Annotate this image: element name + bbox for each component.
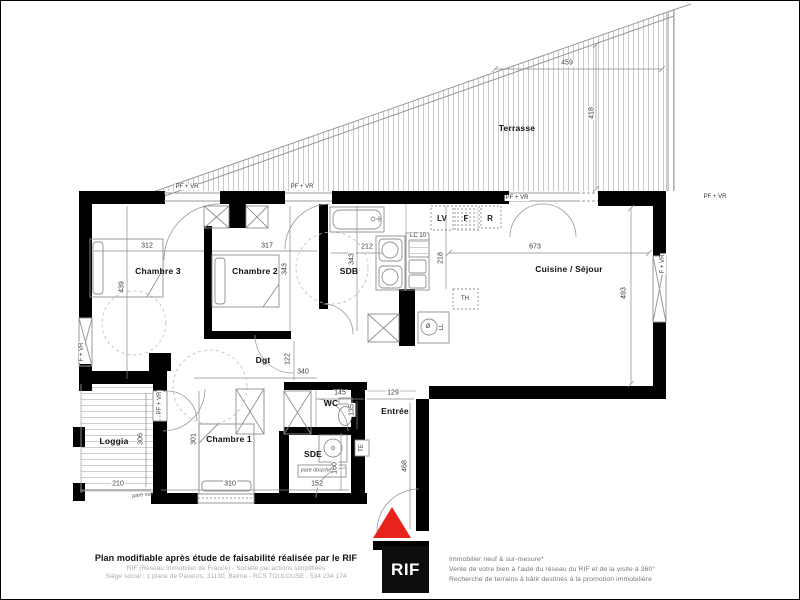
- footer-tagline-2: Vente de votre bien à l'aide du réseau d…: [449, 565, 749, 575]
- dim-loggia-height: 306: [138, 432, 145, 446]
- room-label-dgt: Dgt: [256, 356, 271, 365]
- dim-chambre2-height: 343: [282, 262, 289, 276]
- room-label-loggia: Loggia: [99, 437, 128, 446]
- room-label-chambre3: Chambre 3: [135, 267, 181, 276]
- dim-terrasse-width: 459: [560, 60, 574, 67]
- footer-title: Plan modifiable après étude de faisabili…: [61, 553, 391, 563]
- appliance-label-oven: R: [487, 215, 493, 223]
- rif-logo: RIF: [382, 546, 429, 593]
- appliance-label-fridge: F: [464, 215, 469, 223]
- terrace-outline: [153, 4, 691, 198]
- dim-chambre1-height: 301: [191, 432, 198, 446]
- room-label-cuisine: Cuisine / Séjour: [535, 265, 602, 274]
- room-label-wc: WC: [324, 399, 339, 408]
- dim-wc-width: 145: [333, 390, 347, 397]
- dim-dgt-height: 122: [285, 352, 292, 366]
- dim-chambre3-height: 439: [119, 280, 126, 294]
- dim-sde-height: 160: [332, 461, 339, 475]
- room-label-sde: SDE: [304, 450, 322, 459]
- window-tag-pf-vr-loggia: PF + VR: [157, 391, 163, 416]
- pillow-chambre3: [93, 242, 103, 294]
- pillow-chambre2: [215, 258, 225, 304]
- wardrobe-boxes: [204, 206, 399, 434]
- dim-chambre1-width: 310: [223, 481, 237, 488]
- dim-entree-height: 468: [402, 459, 409, 473]
- footer-right-block: Immobilier neuf & sur-mesure* Vente de v…: [449, 555, 749, 585]
- dim-sdb-width: 212: [360, 244, 374, 251]
- window-tag-f-vr-left: F + VR: [79, 342, 85, 363]
- dim-terrasse-height: 418: [589, 106, 596, 120]
- window-tag-f-vr-right: F + VR: [660, 254, 666, 275]
- room-label-entree: Entrée: [381, 407, 409, 416]
- window-tag-pf-vr-3: PF + VR: [505, 195, 530, 201]
- dim-cuisine-width: 673: [528, 244, 542, 251]
- floor-plan-page: Terrasse Chambre 3 Chambre 2 SDB Cuisine…: [0, 0, 800, 600]
- footer-left-block: Plan modifiable après étude de faisabili…: [61, 553, 391, 580]
- room-label-sdb: SDB: [340, 267, 359, 276]
- window-tag-pf-vr-1: PF + VR: [175, 184, 200, 190]
- tag-pare-douche: pare douche: [301, 468, 332, 474]
- dim-entree-width: 129: [386, 390, 400, 397]
- window-tag-pf-vr-2: PF + VR: [290, 184, 315, 190]
- tag-diameter: Ø: [425, 324, 432, 330]
- dim-chambre3-width: 312: [140, 243, 154, 250]
- dim-wc-height: 135: [349, 403, 356, 417]
- dim-dgt-width: 340: [296, 369, 310, 376]
- footer-company-line: RIF (Réseau Immobilier de France) - Soci…: [61, 565, 391, 572]
- footer-tagline-1: Immobilier neuf & sur-mesure*: [449, 555, 749, 565]
- floor-plan-graphics: [1, 1, 800, 600]
- window-tag-pf-vr-4: PF + VR: [703, 194, 728, 200]
- footer-address-line: Siège social : 1 place de Paveurs, 31130…: [61, 573, 391, 580]
- dim-chambre2-width: 317: [260, 243, 274, 250]
- footer-tagline-3: Recherche de terrains à bâtir destinés à…: [449, 575, 749, 585]
- dim-loggia-width: 210: [111, 481, 125, 488]
- room-label-chambre2: Chambre 2: [232, 267, 278, 276]
- entry-arrow: [373, 507, 411, 538]
- room-label-chambre1: Chambre 1: [206, 435, 252, 444]
- tag-th: TH: [460, 296, 470, 302]
- windows-layer: [79, 193, 666, 503]
- dim-sdb-height: 343: [349, 252, 356, 266]
- room-label-terrasse: Terrasse: [499, 124, 535, 133]
- double-washbasin: [376, 236, 405, 290]
- tag-lc10: LC 10: [409, 233, 427, 239]
- tag-te: TE: [359, 443, 365, 453]
- dim-sde-width: 152: [310, 481, 324, 488]
- clearance-circles: [102, 232, 368, 424]
- dim-kitchen-counter: 218: [438, 251, 445, 265]
- appliance-label-dishwasher: LV: [437, 215, 447, 223]
- kitchen-counter: [406, 233, 429, 290]
- tag-ll: LL: [439, 323, 445, 332]
- dim-cuisine-height: 493: [621, 286, 628, 300]
- rif-logo-text: RIF: [391, 560, 420, 580]
